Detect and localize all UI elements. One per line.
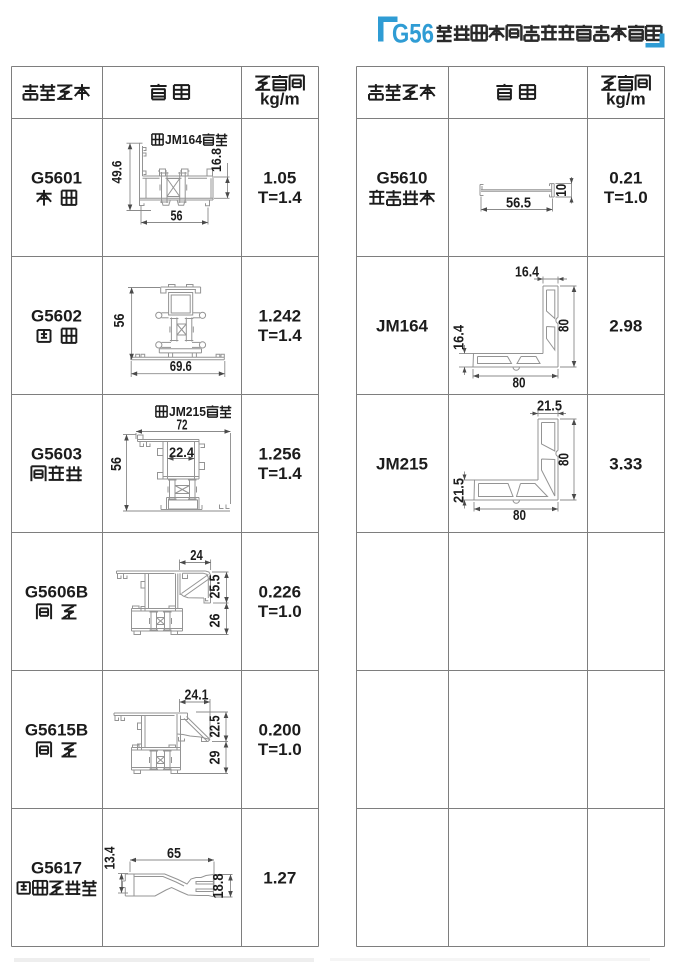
svg-text:G5603: G5603 — [31, 444, 82, 463]
svg-text:G5606B: G5606B — [25, 582, 88, 601]
svg-text:65: 65 — [167, 846, 181, 862]
svg-text:72: 72 — [177, 417, 188, 433]
svg-text:56: 56 — [112, 314, 128, 328]
svg-text:0.200: 0.200 — [259, 720, 302, 739]
svg-text:56: 56 — [109, 457, 125, 471]
svg-text:80: 80 — [557, 453, 573, 466]
svg-text:G5602: G5602 — [31, 306, 82, 325]
svg-text:T=1.0: T=1.0 — [258, 740, 302, 759]
svg-text:56: 56 — [171, 208, 183, 224]
svg-text:21.5: 21.5 — [537, 399, 562, 415]
svg-text:10: 10 — [554, 184, 570, 197]
svg-text:69.6: 69.6 — [170, 359, 192, 375]
svg-text:T=1.0: T=1.0 — [604, 188, 648, 207]
svg-text:T=1.4: T=1.4 — [258, 188, 302, 207]
svg-text:G56: G56 — [392, 19, 434, 49]
svg-text:kg/m: kg/m — [606, 90, 646, 109]
svg-text:G5617: G5617 — [31, 858, 82, 877]
svg-text:22.5: 22.5 — [208, 716, 224, 738]
svg-text:G5601: G5601 — [31, 168, 82, 187]
svg-text:56.5: 56.5 — [506, 195, 531, 211]
svg-text:16.8: 16.8 — [208, 148, 224, 172]
svg-text:1.05: 1.05 — [263, 168, 296, 187]
svg-text:49.6: 49.6 — [109, 160, 125, 183]
svg-text:JM164: JM164 — [165, 132, 203, 147]
svg-text:24.1: 24.1 — [185, 688, 209, 704]
svg-text:JM215: JM215 — [169, 404, 206, 419]
svg-text:T=1.4: T=1.4 — [258, 464, 302, 483]
svg-text:3.33: 3.33 — [609, 455, 642, 474]
svg-text:80: 80 — [513, 508, 526, 524]
svg-text:kg/m: kg/m — [260, 90, 300, 109]
svg-text:1.256: 1.256 — [259, 444, 302, 463]
svg-text:29: 29 — [208, 751, 224, 765]
svg-text:2.98: 2.98 — [609, 317, 642, 336]
svg-text:0.21: 0.21 — [609, 168, 642, 187]
svg-text:JM215: JM215 — [376, 455, 428, 474]
svg-text:G5610: G5610 — [376, 168, 427, 187]
svg-text:G5615B: G5615B — [25, 720, 88, 739]
svg-text:80: 80 — [513, 376, 526, 392]
svg-text:13.4: 13.4 — [103, 847, 119, 870]
svg-text:1.242: 1.242 — [259, 306, 302, 325]
svg-text:16.4: 16.4 — [515, 265, 539, 281]
svg-text:0.226: 0.226 — [259, 582, 302, 601]
svg-text:26: 26 — [208, 614, 224, 628]
svg-text:25.5: 25.5 — [208, 575, 224, 599]
svg-text:16.4: 16.4 — [452, 325, 468, 350]
svg-text:21.5: 21.5 — [452, 478, 468, 503]
svg-text:T=1.0: T=1.0 — [258, 602, 302, 621]
svg-text:24: 24 — [190, 548, 203, 564]
svg-text:JM164: JM164 — [376, 317, 429, 336]
svg-text:80: 80 — [557, 319, 573, 332]
svg-text:18.8: 18.8 — [211, 874, 227, 899]
svg-text:1.27: 1.27 — [263, 869, 296, 888]
svg-text:T=1.4: T=1.4 — [258, 326, 302, 345]
